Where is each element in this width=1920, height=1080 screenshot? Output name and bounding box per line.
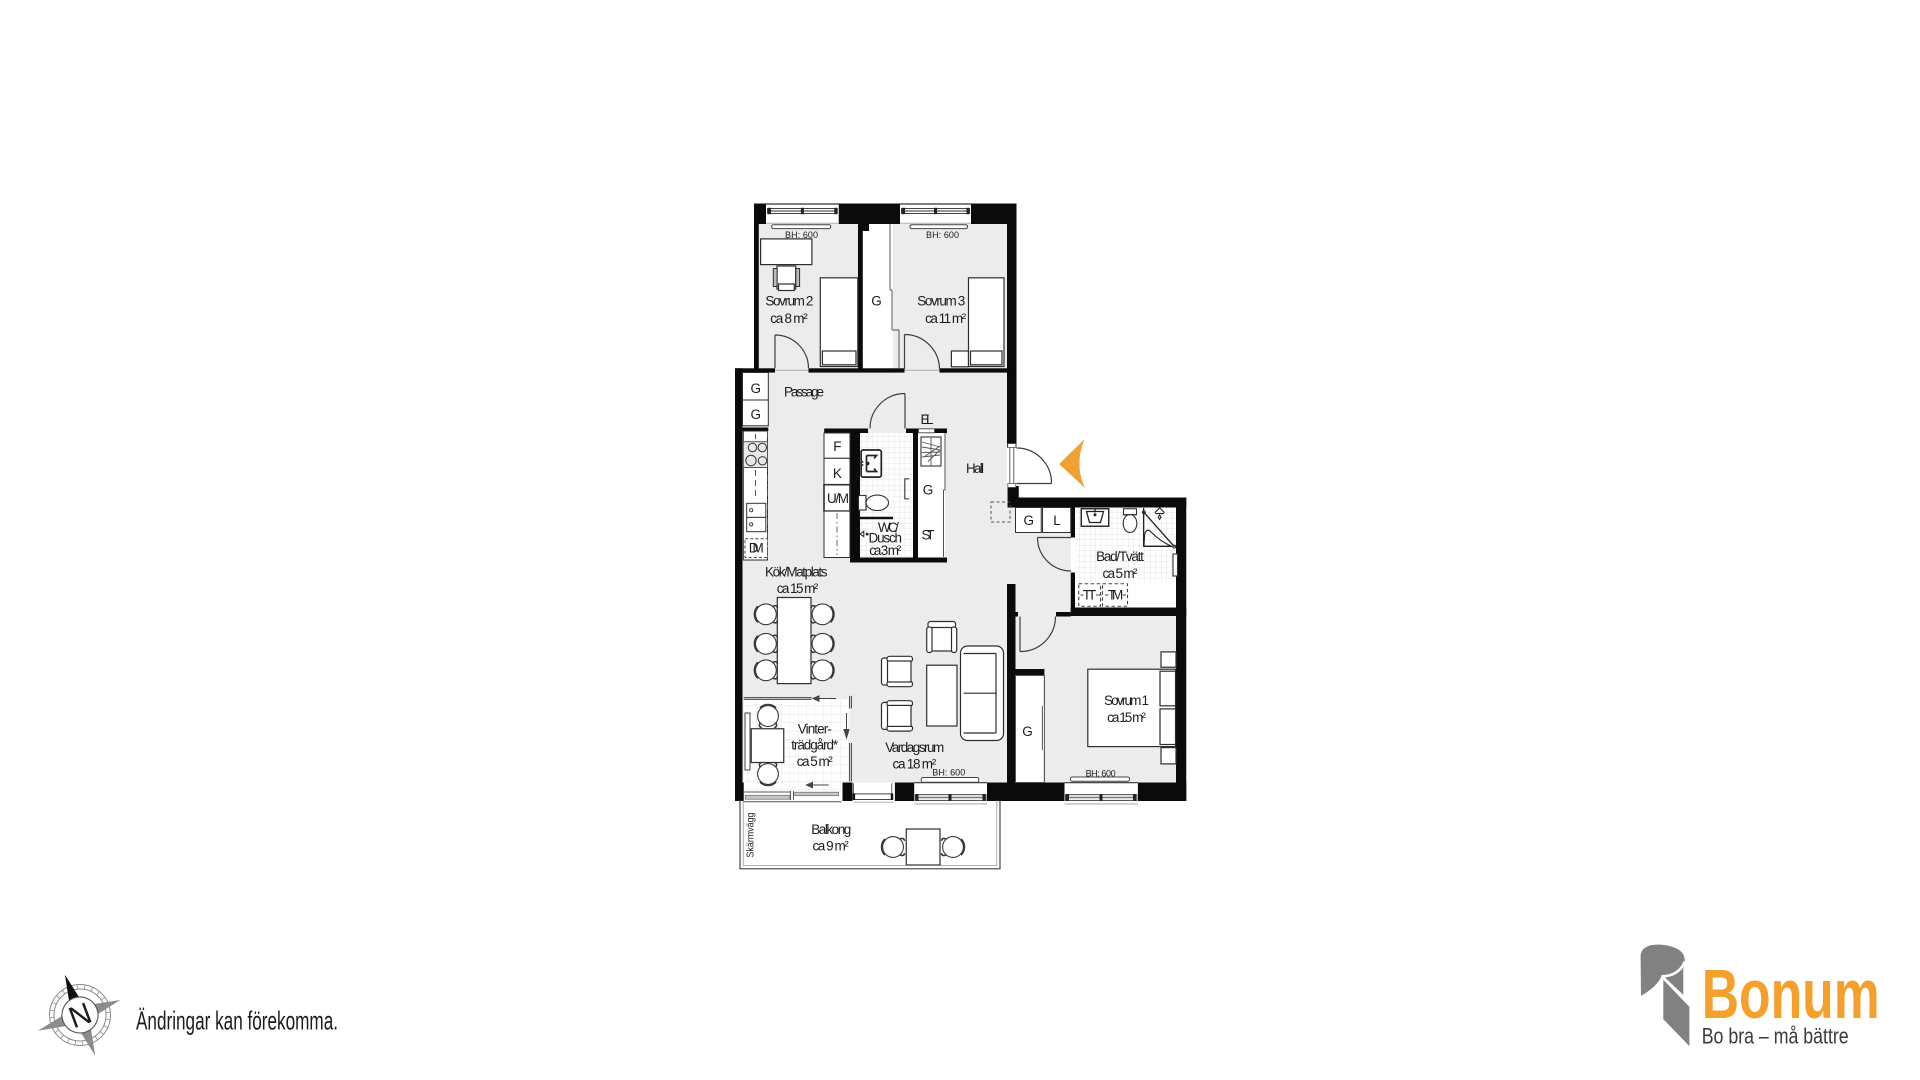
svg-text:ca 5 m²: ca 5 m² xyxy=(1103,566,1139,581)
svg-text:ST: ST xyxy=(922,527,935,542)
svg-text:Sovrum 2: Sovrum 2 xyxy=(765,294,813,309)
svg-text:G: G xyxy=(923,483,934,498)
svg-text:Bo bra – må bättre: Bo bra – må bättre xyxy=(1702,1023,1849,1048)
svg-text:EL: EL xyxy=(921,412,934,427)
svg-text:ca 15 m²: ca 15 m² xyxy=(1107,710,1146,725)
svg-text:Vardagsrum: Vardagsrum xyxy=(885,740,944,755)
svg-text:K: K xyxy=(833,466,842,481)
svg-text:Bonum: Bonum xyxy=(1702,955,1880,1033)
svg-text:Sovrum 1: Sovrum 1 xyxy=(1104,693,1149,708)
svg-text:F: F xyxy=(833,439,841,454)
svg-text:G: G xyxy=(1023,513,1034,528)
svg-text:ca 15 m²: ca 15 m² xyxy=(777,581,819,596)
svg-text:Skärmvägg: Skärmvägg xyxy=(746,813,757,858)
svg-text:Hall: Hall xyxy=(966,461,984,476)
svg-text:ca 8 m²: ca 8 m² xyxy=(770,311,808,326)
svg-text:ca 9 m²: ca 9 m² xyxy=(812,839,849,854)
svg-text:Balkong: Balkong xyxy=(811,822,851,837)
svg-text:TT: TT xyxy=(1083,587,1097,602)
svg-text:U/M: U/M xyxy=(827,491,849,506)
svg-text:ca 18 m²: ca 18 m² xyxy=(893,756,937,771)
svg-text:Vinter-: Vinter- xyxy=(798,721,832,736)
svg-text:G: G xyxy=(871,293,882,308)
svg-text:G: G xyxy=(751,381,762,396)
svg-text:G: G xyxy=(751,407,762,422)
svg-text:BH: 600: BH: 600 xyxy=(1086,769,1116,779)
svg-text:ca 5 m²: ca 5 m² xyxy=(797,754,834,769)
svg-text:BH: 600: BH: 600 xyxy=(785,230,818,240)
svg-text:ca 11 m²: ca 11 m² xyxy=(925,311,967,326)
svg-text:Sovrum 3: Sovrum 3 xyxy=(917,294,965,309)
svg-text:Kök/Matplats: Kök/Matplats xyxy=(765,564,828,579)
svg-text:DM: DM xyxy=(749,541,764,556)
svg-text:BH: 600: BH: 600 xyxy=(926,230,959,240)
svg-text:Ändringar kan förekomma.: Ändringar kan förekomma. xyxy=(136,1006,338,1036)
svg-text:BH: 600: BH: 600 xyxy=(932,768,965,778)
svg-text:ca 3 m²: ca 3 m² xyxy=(869,543,902,558)
svg-text:Passage: Passage xyxy=(784,384,824,399)
svg-text:trädgård*: trädgård* xyxy=(791,737,839,752)
svg-text:TM: TM xyxy=(1108,587,1124,602)
svg-text:Bad/Tvätt: Bad/Tvätt xyxy=(1096,549,1144,564)
svg-text:G: G xyxy=(1022,724,1033,739)
svg-text:L: L xyxy=(1053,513,1061,528)
